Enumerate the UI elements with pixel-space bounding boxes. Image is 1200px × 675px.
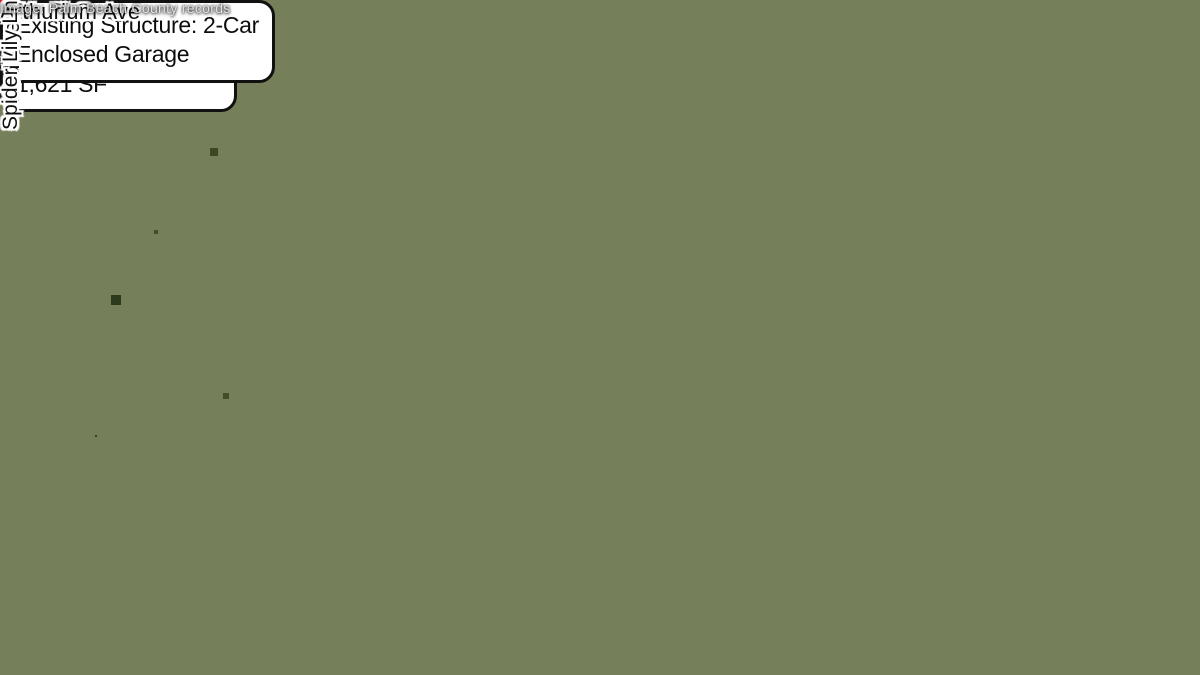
image-credit: Image: Palm Beach County records xyxy=(0,0,231,16)
callout-line: Enclosed Garage xyxy=(16,40,259,69)
street-label-spider-lily-ln: Spider Lily Ln xyxy=(0,0,22,130)
aerial-map: Existing Structure: Single Family House … xyxy=(0,0,1200,675)
